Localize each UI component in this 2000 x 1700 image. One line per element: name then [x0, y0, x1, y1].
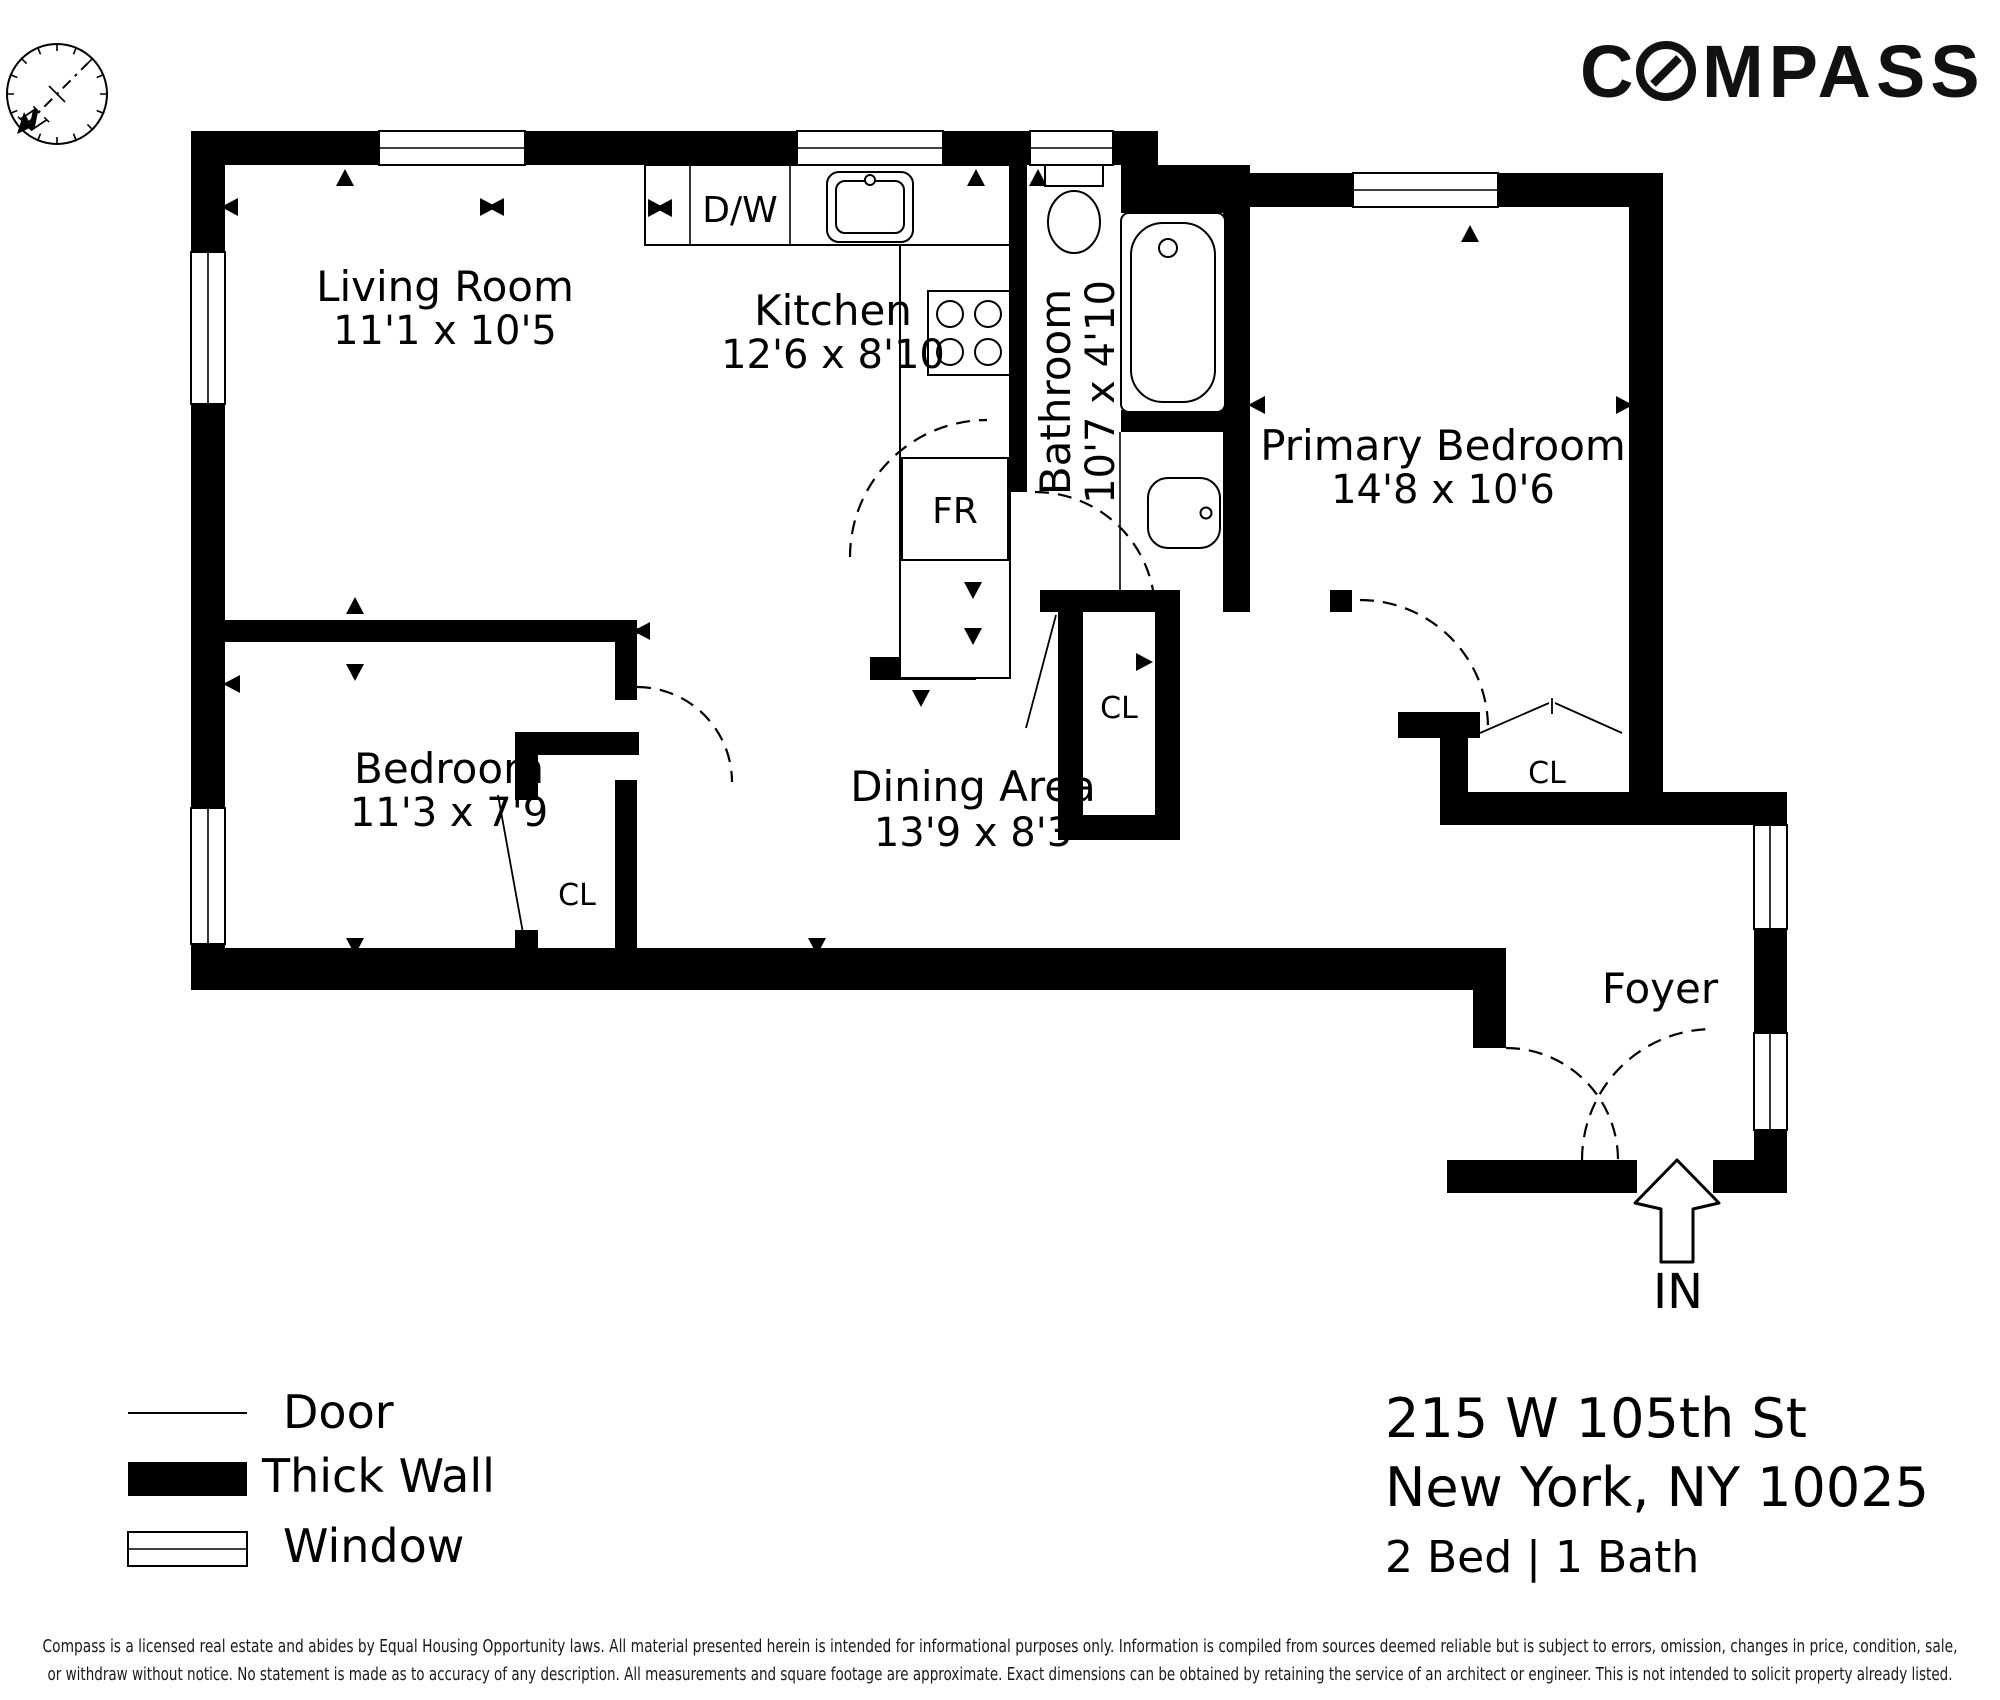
primary-bedroom-label: Primary Bedroom — [1260, 421, 1626, 470]
window — [797, 131, 943, 165]
hall-closet-label: CL — [1100, 691, 1138, 726]
bathroom-label: Bathroom — [1031, 289, 1080, 495]
kitchen-sink — [827, 172, 913, 242]
disclaimer-line2: or withdraw without notice. No statement… — [48, 1665, 1953, 1685]
primary-bedroom-dims: 14'8 x 10'6 — [1331, 467, 1555, 513]
address-line2: New York, NY 10025 — [1385, 1456, 1929, 1519]
window — [379, 131, 525, 165]
living-room-label: Living Room — [316, 262, 574, 311]
dining-area-label: Dining Area — [850, 762, 1096, 811]
compass-logo: C MPASS — [1580, 30, 1985, 113]
address-line3: 2 Bed | 1 Bath — [1385, 1532, 1699, 1583]
bedroom-label: Bedroom — [354, 744, 544, 793]
kitchen-label: Kitchen — [754, 286, 912, 335]
logo-letter-c: C — [1580, 30, 1638, 113]
compass-o-needle-icon — [1640, 45, 1692, 97]
window — [1754, 825, 1787, 929]
floor-plan-page: N C MPASS — [0, 0, 2000, 1700]
dishwasher-label: D/W — [702, 190, 777, 231]
bathroom-sink — [1120, 432, 1220, 610]
logo-letters-mpass: MPASS — [1702, 30, 1985, 113]
bedroom-dims: 11'3 x 7'9 — [350, 790, 548, 836]
window — [1030, 131, 1113, 165]
legend-thick-wall-label: Thick Wall — [261, 1449, 495, 1503]
living-room-dims: 11'1 x 10'5 — [333, 308, 557, 354]
window — [1353, 173, 1498, 207]
window — [1754, 1033, 1787, 1130]
kitchen-counter — [645, 165, 1010, 678]
disclaimer-line1: Compass is a licensed real estate and ab… — [43, 1637, 1958, 1657]
disclaimer: Compass is a licensed real estate and ab… — [43, 1637, 1958, 1685]
address-line1: 215 W 105th St — [1385, 1387, 1807, 1450]
bathroom-dims: 10'7 x 4'10 — [1078, 280, 1124, 504]
legend-thick-wall-swatch — [128, 1462, 247, 1496]
window — [191, 808, 225, 944]
compass-north-label: N — [12, 100, 53, 141]
compass-rose-icon: N — [6, 43, 108, 145]
toilet — [1045, 165, 1103, 253]
primary-closet-label: CL — [1528, 756, 1566, 791]
entrance: IN — [1635, 1160, 1719, 1320]
fridge-label: FR — [932, 491, 978, 532]
dining-area-dims: 13'9 x 8'3 — [874, 810, 1072, 856]
bathtub — [1121, 213, 1225, 412]
legend: Door Thick Wall Window — [128, 1385, 495, 1573]
floor-plan-canvas: N C MPASS — [0, 0, 2000, 1700]
legend-window-label: Window — [283, 1519, 464, 1573]
legend-window-swatch — [128, 1532, 247, 1566]
foyer-label: Foyer — [1602, 964, 1719, 1013]
window — [191, 252, 225, 404]
bedroom-closet-label: CL — [558, 878, 596, 913]
entrance-in-label: IN — [1653, 1264, 1703, 1320]
legend-door-label: Door — [283, 1385, 394, 1439]
kitchen-dims: 12'6 x 8'10 — [721, 332, 945, 378]
entrance-arrow-icon — [1635, 1160, 1719, 1262]
address-block: 215 W 105th St New York, NY 10025 2 Bed … — [1385, 1387, 1929, 1583]
